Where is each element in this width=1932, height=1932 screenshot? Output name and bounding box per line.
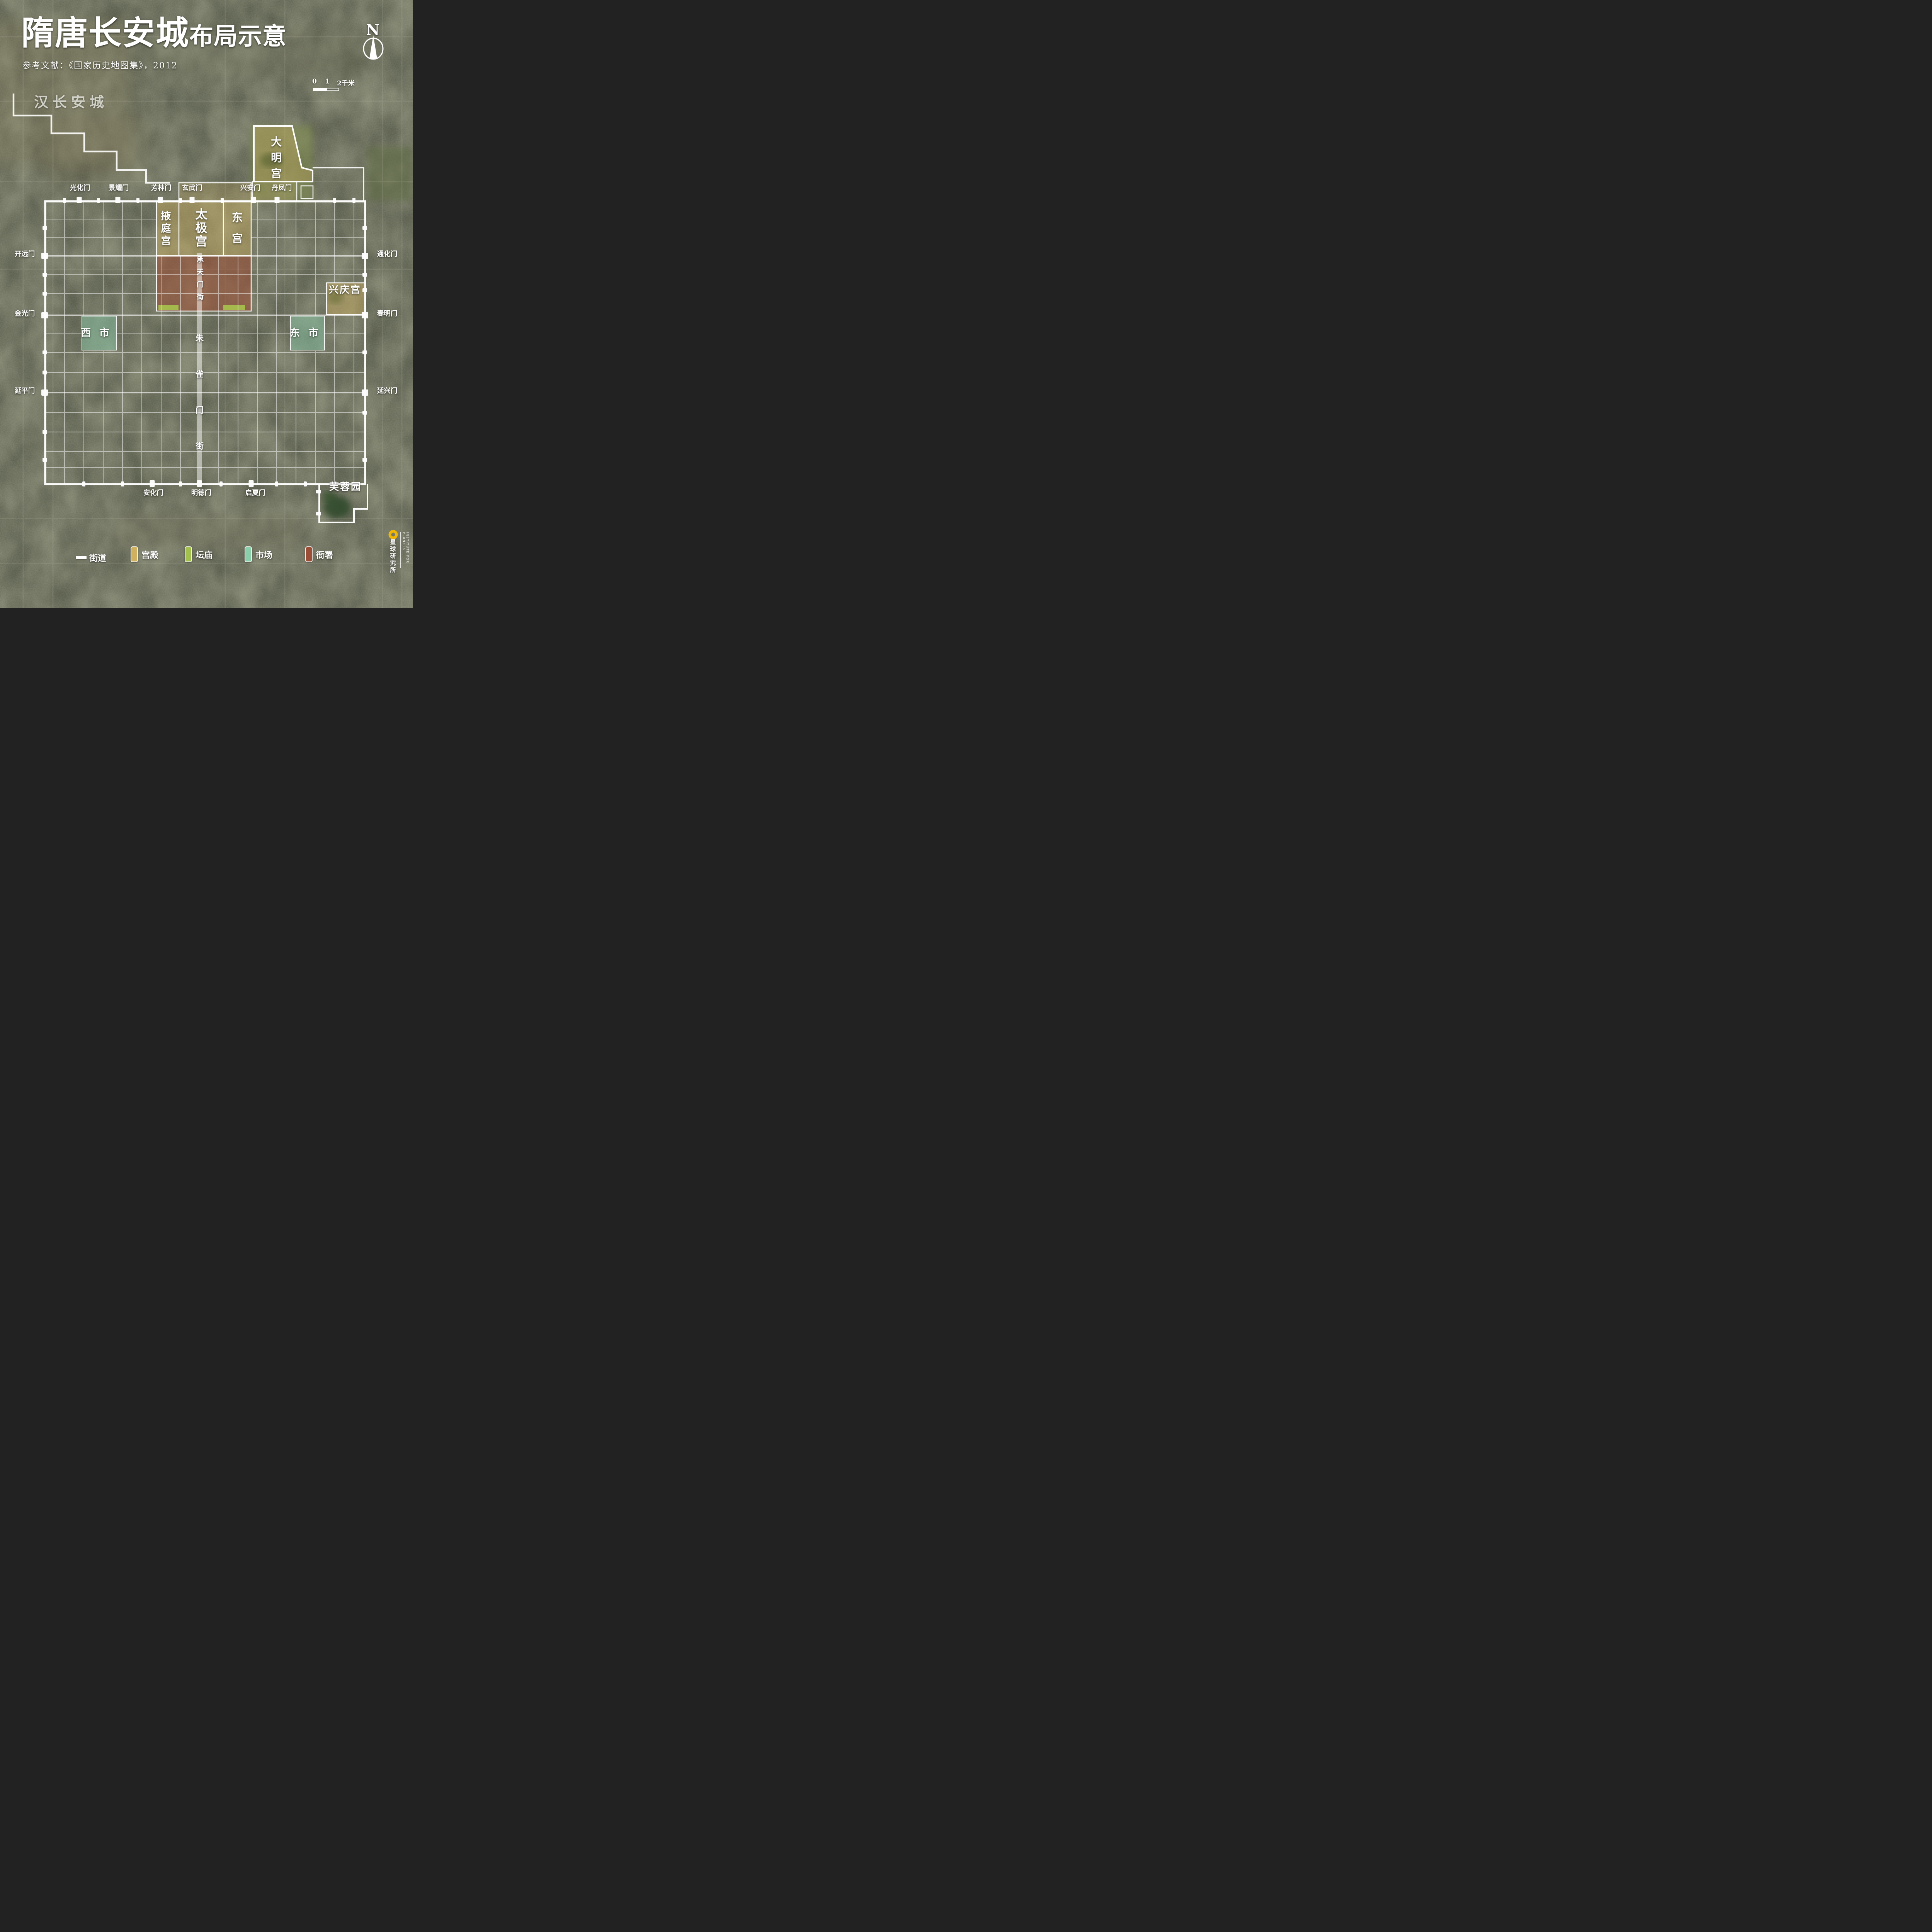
gate-xinganmen: 兴安门	[240, 185, 261, 192]
furong-garden-label: 芙蓉园	[329, 482, 362, 492]
map-page: 隋唐长安城布局示意 参考文献：《国家历史地图集》，2012 N 0 1 2千米 …	[0, 0, 413, 608]
scale-tick-1: 1	[325, 78, 330, 85]
gate-danfengmen: 丹凤门	[272, 185, 292, 192]
gate-yanxingmen: 延兴门	[377, 388, 398, 395]
west-market-label: 西市	[81, 328, 118, 338]
scale-tick-0: 0	[312, 78, 317, 85]
gate-qixiamen: 启夏门	[245, 490, 266, 497]
street-swatch	[76, 556, 87, 559]
legend-label-altar: 坛庙	[196, 548, 213, 561]
east-market-label: 东市	[290, 328, 327, 338]
donggong-label: 东宫	[231, 212, 242, 253]
planet-logo-icon	[388, 529, 398, 540]
market-swatch	[245, 546, 252, 562]
title-sub: 布局示意	[189, 22, 287, 50]
gate-jinguangmen: 金光门	[15, 311, 35, 318]
page-title: 隋唐长安城布局示意	[21, 17, 287, 50]
scale-segment-solid	[313, 88, 327, 91]
legend-label-street: 街道	[89, 551, 106, 564]
legend-label-palace: 宫殿	[141, 548, 158, 561]
altar-swatch	[185, 546, 192, 562]
legend-item-market: 市场	[245, 546, 272, 562]
scale-segment-hollow	[327, 88, 339, 91]
gate-anhuamen: 安化门	[143, 490, 164, 497]
map-overlay	[0, 0, 413, 608]
gate-xuanwumen: 玄武门	[182, 185, 202, 192]
yetinggong-label: 掖庭宫	[160, 211, 170, 248]
taijigong-label: 太极宫	[194, 208, 206, 248]
gate-kaiyuanmen: 开远门	[15, 251, 35, 258]
legend-label-market: 市场	[255, 548, 272, 561]
legend-label-office: 衙署	[316, 548, 333, 561]
office-swatch	[305, 546, 313, 562]
legend-item-office: 衙署	[305, 546, 333, 562]
logo-name-en: INSTITUTE FOR PLANETS	[402, 532, 409, 569]
logo-separator	[400, 532, 401, 568]
legend-item-altar: 坛庙	[185, 546, 213, 562]
gate-chunmingmen: 春明门	[377, 311, 398, 318]
xingqinggong-label: 兴庆宫	[329, 285, 361, 294]
legend-item-street: 街道	[76, 551, 106, 564]
scale-tick-2: 2千米	[337, 78, 355, 87]
imperial-city-fill	[156, 256, 251, 311]
title-main: 隋唐长安城	[21, 14, 189, 53]
scale-bar: 0 1 2千米	[312, 78, 359, 86]
daminggong-fill	[254, 126, 313, 182]
palace-swatch	[131, 546, 138, 562]
gate-guanghuamen: 光化门	[70, 185, 90, 192]
daminggong-label: 大明宫	[270, 136, 281, 184]
gate-yanpingmen: 延平门	[15, 388, 35, 395]
gate-mingdemen: 明德门	[191, 490, 212, 497]
han-changan-label: 汉长安城	[34, 95, 108, 109]
logo-name-cn: 星球研究所	[389, 539, 397, 574]
zhuquemen-street-label: 朱雀门街	[196, 334, 204, 478]
gate-jingyaomen: 景耀门	[109, 185, 129, 192]
altar-strip-east	[223, 305, 245, 310]
chengtianmen-street-label: 承天门街	[196, 256, 203, 305]
gate-tonghuamen: 通化门	[377, 251, 398, 258]
compass-icon	[361, 34, 386, 62]
legend-item-palace: 宫殿	[131, 546, 158, 562]
reference-note: 参考文献：《国家历史地图集》，2012	[22, 62, 178, 70]
gate-fanglinmen: 芳林门	[151, 185, 172, 192]
